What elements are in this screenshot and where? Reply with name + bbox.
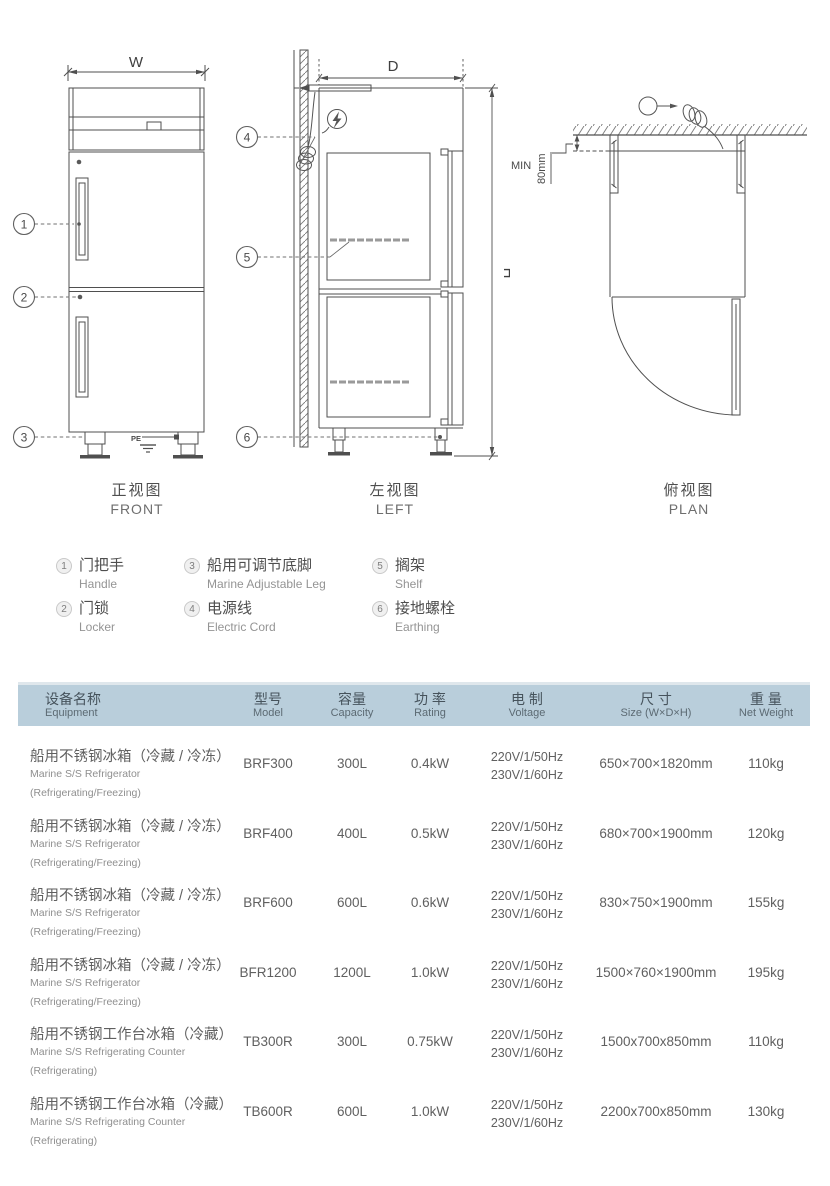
legend-cn: 门锁 bbox=[79, 599, 115, 618]
legend-item-shelf: 5 搁架 Shelf bbox=[372, 556, 425, 591]
callout-6-badge: 6 bbox=[372, 601, 388, 617]
left-cabinet-profile bbox=[294, 85, 463, 452]
legend-item-handle: 1 门把手 Handle bbox=[56, 556, 124, 591]
model-cell: BRF300 bbox=[228, 726, 308, 800]
pe-ground-symbol: PE bbox=[131, 434, 179, 452]
left-view-drawing: D bbox=[235, 45, 510, 490]
model-cell: BRF400 bbox=[228, 796, 308, 870]
model-cell: TB600R bbox=[228, 1074, 308, 1148]
plan-cabinet bbox=[573, 135, 745, 415]
front-caption-en: FRONT bbox=[52, 501, 222, 517]
table-row: 船用不锈钢工作台冰箱（冷藏） Marine S/S Refrigerating … bbox=[18, 1074, 810, 1144]
plan-clearance-dimension: MIN 80mm bbox=[511, 135, 579, 184]
capacity-cell: 600L bbox=[308, 1074, 396, 1148]
callout-1-badge: 1 bbox=[56, 558, 72, 574]
left-depth-label: D bbox=[388, 58, 399, 75]
size-cell: 830×750×1900mm bbox=[590, 865, 722, 939]
upper-compartment bbox=[327, 153, 430, 280]
voltage-cell: 220V/1/50Hz 230V/1/60Hz bbox=[464, 935, 590, 1009]
size-cell: 680×700×1900mm bbox=[590, 796, 722, 870]
svg-text:4: 4 bbox=[244, 131, 251, 145]
capacity-cell: 300L bbox=[308, 1004, 396, 1078]
equipment-cell: 船用不锈钢冰箱（冷藏 / 冷冻） Marine S/S Refrigerator… bbox=[18, 726, 228, 800]
legend-item-electric-cord: 4 电源线 Electric Cord bbox=[184, 599, 276, 634]
equipment-cell: 船用不锈钢冰箱（冷藏 / 冷冻） Marine S/S Refrigerator… bbox=[18, 935, 228, 1009]
callout-3-badge: 3 bbox=[184, 558, 200, 574]
lower-door-lock bbox=[78, 295, 83, 300]
plan-view-drawing: MIN 80mm bbox=[505, 60, 825, 460]
column-header-rating: 功 率 Rating bbox=[396, 685, 464, 726]
size-cell: 2200x700x850mm bbox=[590, 1074, 722, 1148]
pe-label: PE bbox=[131, 434, 141, 443]
svg-text:1: 1 bbox=[21, 218, 28, 232]
left-view-caption: 左视图 LEFT bbox=[310, 479, 480, 517]
front-left-leg bbox=[85, 432, 105, 444]
legend-cn: 搁架 bbox=[395, 556, 425, 575]
specification-table: 设备名称 Equipment 型号 Model 容量 Capacity 功 率 … bbox=[18, 682, 810, 1143]
capacity-cell: 1200L bbox=[308, 935, 396, 1009]
legend-en: Marine Adjustable Leg bbox=[207, 577, 326, 591]
left-caption-en: LEFT bbox=[310, 501, 480, 517]
table-row: 船用不锈钢冰箱（冷藏 / 冷冻） Marine S/S Refrigerator… bbox=[18, 865, 810, 935]
capacity-cell: 600L bbox=[308, 865, 396, 939]
table-row: 船用不锈钢冰箱（冷藏 / 冷冻） Marine S/S Refrigerator… bbox=[18, 796, 810, 866]
left-view-front-leg bbox=[333, 428, 345, 440]
model-cell: BFR1200 bbox=[228, 935, 308, 1009]
table-header-row: 设备名称 Equipment 型号 Model 容量 Capacity 功 率 … bbox=[18, 685, 810, 726]
legend-en: Electric Cord bbox=[207, 620, 276, 634]
callout-5-marker: 5 bbox=[237, 247, 331, 268]
equipment-cell: 船用不锈钢工作台冰箱（冷藏） Marine S/S Refrigerating … bbox=[18, 1074, 228, 1148]
size-cell: 650×700×1820mm bbox=[590, 726, 722, 800]
column-header-equipment: 设备名称 Equipment bbox=[18, 685, 228, 726]
left-height-dimension bbox=[454, 84, 498, 460]
weight-cell: 195kg bbox=[722, 935, 810, 1009]
svg-text:6: 6 bbox=[244, 431, 251, 445]
legend-item-locker: 2 门锁 Locker bbox=[56, 599, 115, 634]
capacity-cell: 400L bbox=[308, 796, 396, 870]
callout-5-badge: 5 bbox=[372, 558, 388, 574]
svg-text:3: 3 bbox=[21, 431, 28, 445]
weight-cell: 120kg bbox=[722, 796, 810, 870]
front-cabinet-outline bbox=[69, 88, 204, 455]
rating-cell: 0.75kW bbox=[396, 1004, 464, 1078]
legend-en: Earthing bbox=[395, 620, 455, 634]
voltage-cell: 220V/1/50Hz 230V/1/60Hz bbox=[464, 865, 590, 939]
table-row: 船用不锈钢工作台冰箱（冷藏） Marine S/S Refrigerating … bbox=[18, 1004, 810, 1074]
legend-cn: 门把手 bbox=[79, 556, 124, 575]
legend-en: Locker bbox=[79, 620, 115, 634]
column-header-net-weight: 重 量 Net Weight bbox=[722, 685, 810, 726]
size-cell: 1500x700x850mm bbox=[590, 1004, 722, 1078]
table-row: 船用不锈钢冰箱（冷藏 / 冷冻） Marine S/S Refrigerator… bbox=[18, 726, 810, 796]
equipment-cell: 船用不锈钢工作台冰箱（冷藏） Marine S/S Refrigerating … bbox=[18, 1004, 228, 1078]
weight-cell: 110kg bbox=[722, 726, 810, 800]
plan-caption-en: PLAN bbox=[604, 501, 774, 517]
callout-2-badge: 2 bbox=[56, 601, 72, 617]
weight-cell: 110kg bbox=[722, 1004, 810, 1078]
door-swing-arc bbox=[612, 297, 736, 415]
equipment-cell: 船用不锈钢冰箱（冷藏 / 冷冻） Marine S/S Refrigerator… bbox=[18, 865, 228, 939]
lower-compartment bbox=[327, 297, 430, 417]
plan-wall-hatch bbox=[573, 124, 807, 135]
legend-item-adjustable-leg: 3 船用可调节底脚 Marine Adjustable Leg bbox=[184, 556, 326, 591]
front-width-label: W bbox=[129, 54, 144, 71]
legend-en: Handle bbox=[79, 577, 124, 591]
size-cell: 1500×760×1900mm bbox=[590, 935, 722, 1009]
legend-item-earthing: 6 接地螺栓 Earthing bbox=[372, 599, 455, 634]
upper-door-profile bbox=[448, 151, 463, 287]
callout-4-badge: 4 bbox=[184, 601, 200, 617]
front-right-leg bbox=[178, 432, 198, 444]
model-cell: BRF600 bbox=[228, 865, 308, 939]
rating-cell: 1.0kW bbox=[396, 1074, 464, 1148]
equipment-cell: 船用不锈钢冰箱（冷藏 / 冷冻） Marine S/S Refrigerator… bbox=[18, 796, 228, 870]
upper-door-lock bbox=[77, 160, 82, 165]
legend-cn: 接地螺栓 bbox=[395, 599, 455, 618]
datasheet-page: { "drawings": { "front": { "caption_cn":… bbox=[0, 0, 830, 1186]
plan-view-caption: 俯视图 PLAN bbox=[604, 479, 774, 517]
weight-cell: 130kg bbox=[722, 1074, 810, 1148]
table-row: 船用不锈钢冰箱（冷藏 / 冷冻） Marine S/S Refrigerator… bbox=[18, 935, 810, 1005]
plan-caption-cn: 俯视图 bbox=[604, 479, 774, 500]
callout-6-marker: 6 bbox=[237, 427, 443, 448]
bulkhead-wall bbox=[294, 50, 308, 447]
capacity-cell: 300L bbox=[308, 726, 396, 800]
column-header-capacity: 容量 Capacity bbox=[308, 685, 396, 726]
column-header-model: 型号 Model bbox=[228, 685, 308, 726]
legend-cn: 船用可调节底脚 bbox=[207, 556, 326, 575]
voltage-cell: 220V/1/50Hz 230V/1/60Hz bbox=[464, 726, 590, 800]
lower-door-profile bbox=[448, 293, 463, 425]
column-header-size: 尺 寸 Size (W×D×H) bbox=[590, 685, 722, 726]
power-symbol-icon bbox=[322, 110, 347, 134]
plan-plug-and-cord bbox=[639, 97, 723, 149]
left-caption-cn: 左视图 bbox=[310, 479, 480, 500]
front-view-drawing: W PE 1 2 bbox=[10, 50, 235, 490]
column-header-voltage: 电 制 Voltage bbox=[464, 685, 590, 726]
min-label: MIN bbox=[511, 160, 531, 172]
svg-text:5: 5 bbox=[244, 251, 251, 265]
voltage-cell: 220V/1/50Hz 230V/1/60Hz bbox=[464, 1004, 590, 1078]
callout-2-marker: 2 bbox=[14, 287, 77, 308]
rating-cell: 0.5kW bbox=[396, 796, 464, 870]
rating-cell: 0.4kW bbox=[396, 726, 464, 800]
legend-en: Shelf bbox=[395, 577, 425, 591]
svg-text:2: 2 bbox=[21, 291, 28, 305]
voltage-cell: 220V/1/50Hz 230V/1/60Hz bbox=[464, 796, 590, 870]
model-cell: TB300R bbox=[228, 1004, 308, 1078]
rating-cell: 1.0kW bbox=[396, 935, 464, 1009]
front-view-caption: 正视图 FRONT bbox=[52, 479, 222, 517]
rating-cell: 0.6kW bbox=[396, 865, 464, 939]
legend-cn: 电源线 bbox=[207, 599, 276, 618]
front-caption-cn: 正视图 bbox=[52, 479, 222, 500]
voltage-cell: 220V/1/50Hz 230V/1/60Hz bbox=[464, 1074, 590, 1148]
weight-cell: 155kg bbox=[722, 865, 810, 939]
clearance-label: 80mm bbox=[536, 153, 548, 184]
